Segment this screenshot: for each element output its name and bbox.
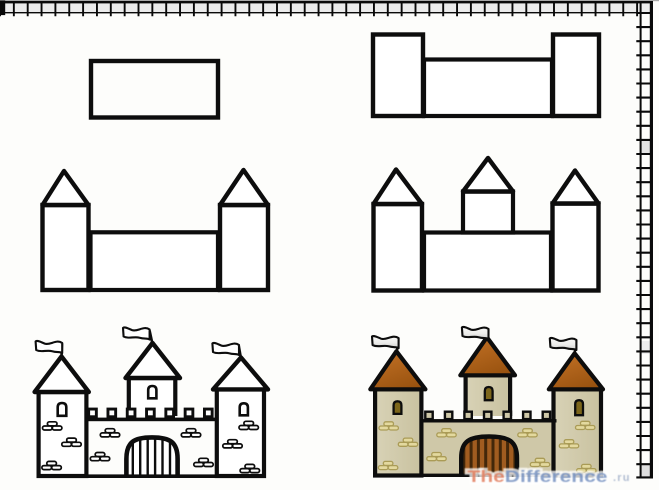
svg-text:.ru: .ru	[613, 472, 631, 484]
svg-text:TheDifference: TheDifference	[468, 468, 608, 486]
